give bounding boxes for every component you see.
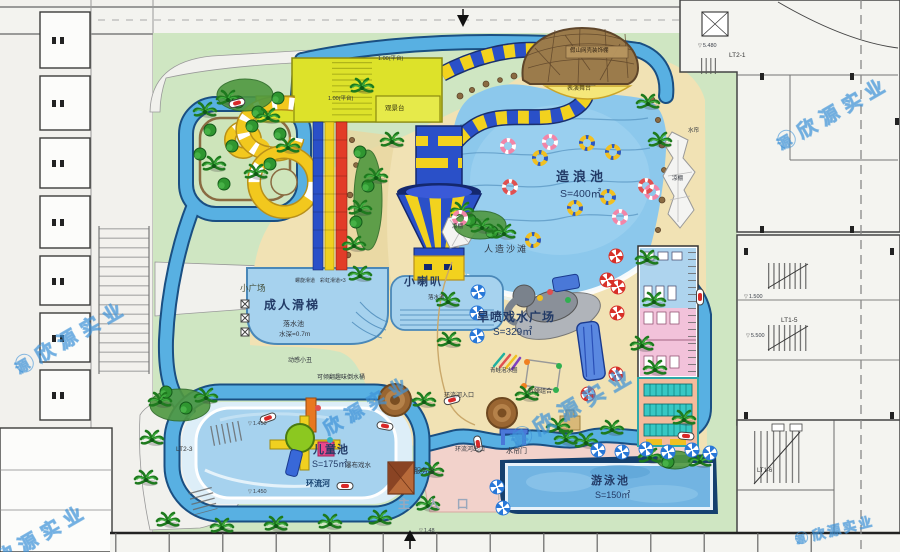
stair-lt1-5-label: LT1-5	[781, 318, 798, 325]
rainbow-slides	[313, 122, 347, 270]
river-inlet-label: 环流河入口	[444, 393, 474, 399]
level-value: 1.500	[749, 294, 763, 300]
level-mark-5480: ▽ 5.480	[698, 43, 717, 49]
swim-pool-label: 游泳池	[591, 476, 630, 487]
funnel-landing-label: 落水池	[428, 296, 445, 302]
level-mark-5500: ▽ 5.500	[746, 333, 765, 339]
watermark-logo-icon: 源	[794, 530, 810, 546]
level-value: 1.48	[424, 528, 435, 534]
main-entrance-label: 主 入 口	[398, 498, 476, 510]
wave-pool-label: 造浪池	[556, 170, 607, 183]
level-triangle-icon: ▽	[744, 294, 748, 300]
level-triangle-icon: ▽	[419, 528, 423, 534]
dome-label: 假山网壳装饰棚	[570, 49, 609, 55]
stair-lt2-3-label: LT2-3	[176, 447, 193, 454]
level-triangle-icon: ▽	[248, 421, 252, 427]
adult-landing-label: 落水池	[283, 321, 304, 328]
platform-level-label-a: 1.00(平台)	[328, 97, 353, 103]
adult-depth-label: 水深=0.7m	[279, 332, 310, 339]
wave-pool-area: S=400㎡	[560, 189, 601, 200]
service-desk-label: 服务台	[414, 468, 435, 475]
waterfall-label: 瀑布戏水	[345, 463, 371, 470]
bomb-set-label: 拆弹组合	[528, 389, 552, 395]
level-mark-1450-b: ▽ 1.450	[248, 489, 267, 495]
stage-label: 表演舞台	[567, 86, 591, 92]
canopy-label-b: 凉棚	[452, 225, 463, 231]
funnel-tower	[416, 126, 462, 190]
water-park-site-plan: 造浪池 S=400㎡ 人造沙滩 旱喷戏水广场 S=329㎡ 成人滑梯 落水池 水…	[0, 0, 900, 552]
funnel-label: 小喇叭	[404, 277, 443, 288]
kids-pool-label: 儿童池	[313, 445, 349, 456]
level-mark-1500: ▽ 1.500	[744, 294, 763, 300]
water-curtain-label: 水帘	[688, 129, 699, 135]
level-value: 1.450	[253, 421, 267, 427]
level-value: 1.450	[253, 489, 267, 495]
adult-slide-label: 成人滑梯	[264, 299, 320, 311]
pergola-marks	[241, 300, 249, 336]
viewing-deck-label: 观景台	[385, 106, 405, 113]
platform-level-label-b: 1.00(平台)	[378, 57, 403, 63]
spray-plaza-area: S=329㎡	[493, 328, 532, 338]
level-value: 5.500	[751, 333, 765, 339]
level-triangle-icon: ▽	[698, 43, 702, 49]
rainbow-slide-label: 彩虹滑道×3	[320, 279, 346, 284]
tipping-bucket-label: 可倾翻趣味倒水桶	[317, 375, 365, 381]
stair-lt1-6-label: LT1-6	[757, 468, 772, 474]
level-mark-1450-a: ▽ 1.450	[248, 421, 267, 427]
spray-plaza-label: 旱喷戏水广场	[477, 311, 555, 323]
level-mark-148: ▽ 1.48	[419, 528, 435, 534]
building-mid-right	[737, 235, 900, 425]
level-triangle-icon: ▽	[746, 333, 750, 339]
stair-lt2-1-label: LT2-1	[729, 53, 746, 60]
level-triangle-icon: ▽	[248, 489, 252, 495]
frog-rings-label: 青蛙泡水圈	[490, 369, 518, 375]
kids-pool-area: S=175㎡	[312, 460, 347, 469]
beach-label: 人造沙滩	[484, 245, 528, 254]
small-plaza-label: 小广场	[240, 284, 266, 293]
level-value: 5.480	[703, 43, 717, 49]
clown-label: 动感小丑	[288, 358, 312, 364]
canopy-label-a: 凉棚	[672, 177, 683, 183]
river-outlet-label: 环流河出口	[455, 447, 485, 453]
spiral-slide-label: 螺旋滑道	[295, 279, 315, 284]
swim-pool-area: S=150㎡	[595, 491, 630, 500]
lazy-river-label: 环流河	[306, 480, 330, 488]
service-hut	[388, 462, 414, 494]
bottom-buildings-strip	[110, 533, 900, 552]
